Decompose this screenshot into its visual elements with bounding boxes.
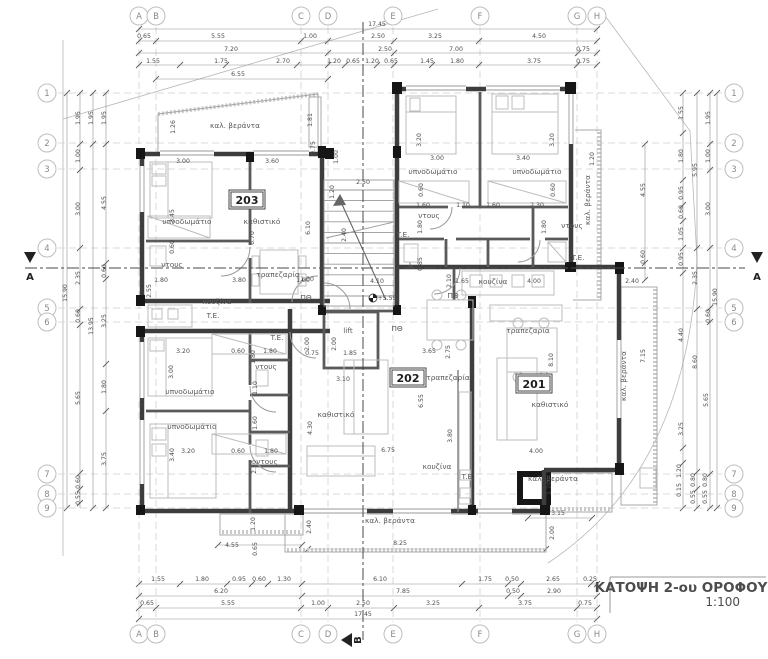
dimension-label: 0.75 (576, 46, 590, 53)
column (246, 152, 254, 162)
dimension-label: 1.55 (146, 58, 160, 65)
column (468, 505, 476, 515)
room-label: T.E. (570, 253, 584, 262)
dimension-label: 0.15 (676, 483, 683, 497)
dimension-label: 3.80 (232, 277, 246, 284)
dimension-label: 1.80 (263, 348, 277, 355)
dimension-label: 7.15 (640, 349, 647, 363)
grid-label: A (136, 12, 142, 22)
dimension-label: 3.00 (75, 202, 82, 216)
dimension-label: 2.90 (547, 588, 561, 595)
dimension-label: 3.20 (176, 348, 190, 355)
dimension-label: 5.65 (75, 391, 82, 405)
grid-label: 1 (731, 89, 736, 99)
dimension-label: 2.00 (304, 337, 311, 351)
dimension-label: 1.20 (365, 58, 379, 65)
column (392, 82, 402, 94)
dimension-label: 0.75 (310, 141, 317, 155)
stair-break-line (326, 222, 394, 238)
room-label: τραπεζαρία (506, 326, 550, 335)
dimension-label: 1.05 (678, 227, 685, 241)
dimension-label: 4.55 (101, 196, 108, 210)
dimension-label: 2.50 (378, 46, 392, 53)
dimension-label: 3.00 (705, 202, 712, 216)
dimension-label: 1.20 (676, 464, 683, 478)
dimension-label: 0.65 (140, 600, 154, 607)
wardrobe (399, 181, 469, 203)
dimension-label: 1.80 (264, 448, 278, 455)
dimension-label: 3.25 (678, 422, 685, 436)
dimension-label: 2.00 (331, 337, 338, 351)
room-label: τραπεζαρία (256, 270, 300, 279)
dimension-label: 0.60 (550, 183, 557, 197)
dimension-label: 1.00 (75, 149, 82, 163)
dimension-label: 2.35 (692, 271, 699, 285)
kitchen-counter (459, 392, 471, 504)
door-arc (221, 247, 250, 276)
dimension-label: 0.65 (384, 58, 398, 65)
sofa (307, 446, 375, 476)
dimension-label: 4.30 (307, 421, 314, 435)
dimension-label: 7.85 (396, 588, 410, 595)
dimension-label: 2.50 (371, 33, 385, 40)
dimension-label: 15.90 (62, 284, 69, 302)
grid-label: B (153, 12, 159, 22)
dimension-label: 1.60 (252, 416, 259, 430)
dimension-label: 0.75 (578, 600, 592, 607)
dimension-label: 13.95 (88, 317, 95, 335)
dimension-label: 0.95 (232, 576, 246, 583)
dimension-label: 3.25 (426, 600, 440, 607)
dimension-label: 0.75 (305, 350, 319, 357)
dimension-label: 4.10 (370, 278, 384, 285)
dimension-label: 1.00 (333, 150, 340, 164)
dimension-label: 1.80 (678, 149, 685, 163)
dimension-label: 7.20 (224, 46, 238, 53)
dimension-label: 1.00 (311, 600, 325, 607)
dimension-label: 3.00 (176, 158, 190, 165)
column (318, 146, 326, 158)
level-marker (369, 294, 377, 302)
dimension-label: 1.60 (416, 202, 430, 209)
dimension-label: 1.95 (705, 111, 712, 125)
dimension-label: 0.60 (252, 576, 266, 583)
dimension-label: 2.30 (530, 202, 544, 209)
dimension-label: 5.95 (692, 163, 699, 177)
drawing-title: ΚΑΤΟΨΗ 2-ου ΟΡΟΦΟΥ (595, 580, 768, 596)
sofa (344, 360, 388, 434)
dimension-label: 1.81 (307, 113, 314, 127)
room-label: T.E. (269, 333, 283, 342)
grid-label: 2 (44, 139, 49, 149)
dimension-label: 2.50 (356, 600, 370, 607)
dimension-label: 1.55 (678, 106, 685, 120)
grid-label: 9 (44, 504, 49, 514)
dimension-label: 0.50 (506, 588, 520, 595)
dimension-label: 7.00 (449, 46, 463, 53)
dimension-label: 1.00 (705, 149, 712, 163)
room-label: κουζίνα (479, 277, 508, 286)
dimension-label: 6.75 (381, 447, 395, 454)
dimension-label: 2.10 (446, 274, 453, 288)
grid-label: G (574, 12, 581, 22)
dimension-label: 3.25 (101, 314, 108, 328)
dimension-label: 0.60 (678, 205, 685, 219)
dimension-label: 2.35 (75, 271, 82, 285)
dimension-label: 2.50 (356, 179, 370, 186)
drawing-scale: 1:100 (705, 595, 740, 609)
dimension-label: 2.00 (549, 526, 556, 540)
column (393, 146, 401, 158)
dimension-label: 1.20 (250, 517, 257, 531)
dimension-label: 2.40 (341, 228, 348, 242)
dimension-label: 0.60 (231, 348, 245, 355)
kitchen-island (490, 305, 562, 321)
section-lines (25, 22, 745, 640)
room-label: υπνοδωμάτιο (167, 422, 217, 431)
dimension-label: 3.15 (551, 510, 565, 517)
column (540, 505, 550, 515)
grid-label: H (594, 12, 600, 22)
dimension-label: 3.40 (169, 448, 176, 462)
dimension-label: 0.60 (231, 448, 245, 455)
room-label: καλ. βεράντα (583, 175, 592, 225)
grid-label: G (574, 630, 581, 640)
window (478, 507, 512, 515)
room-label: καλ. βεράντα (619, 351, 628, 401)
grid-label: A (136, 630, 142, 640)
dimension-label: 1.20 (327, 58, 341, 65)
dimension-label: 2.40 (625, 278, 639, 285)
grid-label: 1 (44, 89, 49, 99)
window (406, 84, 466, 92)
room-label: καλ. βεράντα (210, 121, 260, 130)
room-label: ντους (418, 211, 440, 220)
dimension-label: 5.55 (211, 33, 225, 40)
dimension-label: 17.45 (354, 611, 372, 618)
grid-label: 6 (44, 318, 49, 328)
dimension-label: 0.60 (640, 250, 647, 264)
column (318, 305, 326, 315)
room-label: lift (343, 326, 353, 335)
dimension-label: 0.85 (417, 257, 424, 271)
dimension-label: 6.10 (373, 576, 387, 583)
dimension-label: 8.60 (692, 355, 699, 369)
dimension-label: 5.55 (221, 600, 235, 607)
dimension-label: 1.20 (546, 481, 553, 495)
dimension-label: 6.55 (231, 71, 245, 78)
section-marker-a-left-icon (24, 252, 36, 263)
bed (150, 162, 212, 218)
shower-fixture (150, 242, 656, 488)
grid-label: 3 (44, 165, 49, 175)
dimension-label: 1.30 (277, 576, 291, 583)
dimension-label: 1.80 (450, 58, 464, 65)
dimension-label: 1.65 (455, 278, 469, 285)
dimension-label: 3.80 (447, 429, 454, 443)
dimension-label: 0.60 (418, 183, 425, 197)
dimension-label: 1.20 (589, 152, 596, 166)
section-marker-b-icon (341, 633, 352, 647)
grid-label: E (390, 630, 395, 640)
dimension-label: 6.10 (305, 221, 312, 235)
room-label: υπνοδωμάτιο (408, 167, 458, 176)
bed (150, 424, 216, 498)
dimension-label: 0.60 (705, 309, 712, 323)
dimension-label: 0.60 (169, 240, 176, 254)
dimension-label: 0.80 (690, 473, 697, 487)
grid-label: 4 (44, 244, 49, 254)
room-label: κουζίνα (203, 297, 232, 306)
column (565, 82, 576, 94)
grid-label: 6 (731, 318, 736, 328)
dimension-label: 3.75 (527, 58, 541, 65)
section-label-b: B (353, 636, 364, 644)
dimension-label: 2.40 (306, 520, 313, 534)
veranda-bottom (285, 514, 546, 552)
dimension-label: 1.95 (75, 111, 82, 125)
dimension-label: 1.55 (151, 576, 165, 583)
dimension-label: 8.25 (393, 540, 407, 547)
dimension-label: 0.50 (505, 576, 519, 583)
dimension-label: 4.40 (678, 328, 685, 342)
dimension-label: 0.60 (75, 475, 82, 489)
unit-number: 201 (523, 378, 546, 391)
dimension-label: 1.80 (154, 277, 168, 284)
room-label: καθιστικό (532, 400, 569, 409)
unit-number: 203 (236, 194, 259, 207)
dimension-label: 4.00 (527, 278, 541, 285)
dimension-label: 3.20 (181, 448, 195, 455)
dimension-label: 2.75 (445, 345, 452, 359)
dimension-label: 4.50 (532, 33, 546, 40)
room-label: ντους (561, 221, 583, 230)
unit-number: 202 (397, 372, 420, 385)
dimension-label: 1.95 (101, 111, 108, 125)
grid-label: F (478, 12, 483, 22)
column (136, 505, 145, 515)
room-label: καλ. βεράντα (365, 516, 415, 525)
column (136, 148, 145, 159)
dimension-label: 1.85 (343, 350, 357, 357)
room-label: T.E. (460, 472, 474, 481)
room-label: ντους (256, 457, 278, 466)
dimension-label: 0.60 (75, 309, 82, 323)
bed (406, 96, 456, 154)
column (294, 505, 304, 515)
grid-label: 7 (44, 470, 49, 480)
window (138, 166, 146, 212)
grid-label: 2 (731, 139, 736, 149)
room-label: κουζίνα (423, 462, 452, 471)
column (468, 296, 476, 308)
dimension-label: 2.55 (146, 284, 153, 298)
grid-label: 4 (731, 244, 736, 254)
room-label: υπνοδωμάτιο (162, 217, 212, 226)
section-marker-a-right-icon (751, 252, 763, 263)
dimension-label: 0.60 (101, 264, 108, 278)
column (136, 295, 145, 306)
room-label: υπνοδωμάτιο (512, 167, 562, 176)
verandas (158, 94, 657, 552)
room-label: καλ. βεράντα (528, 474, 578, 483)
dimension-label: 4.55 (640, 183, 647, 197)
grid-label: C (298, 630, 304, 640)
dimension-label: 0.55 (690, 490, 697, 504)
grid-label: 9 (731, 504, 736, 514)
window (138, 342, 146, 398)
dimension-label: 1.75 (478, 576, 492, 583)
dimension-label: 1.20 (329, 185, 336, 199)
dimension-label: +5.55 (378, 295, 397, 302)
room-label: T.E. (205, 311, 219, 320)
dimension-label: 0.95 (678, 186, 685, 200)
grid-label: H (594, 630, 600, 640)
dimension-label: 0.55 (75, 491, 82, 505)
dimension-label: 1.00 (303, 33, 317, 40)
window (253, 149, 309, 157)
dimension-label: 3.20 (549, 133, 556, 147)
dimension-label: 0.75 (576, 58, 590, 65)
room-label: υπνοδωμάτιο (165, 387, 215, 396)
dimension-label: 1.10 (252, 381, 259, 395)
grid-label: F (478, 630, 483, 640)
dimension-label: 15.90 (712, 288, 719, 306)
dimension-label: 0.95 (678, 252, 685, 266)
dimension-label: 4.00 (529, 448, 543, 455)
dimension-label: 8.10 (548, 353, 555, 367)
sofa (497, 358, 537, 440)
boundary-line (600, 9, 697, 260)
dimension-label: 1.10 (456, 202, 470, 209)
column (393, 305, 401, 315)
column (136, 326, 145, 337)
dimension-label: 1.60 (486, 202, 500, 209)
room-label: ΠΘ (447, 291, 459, 300)
dimension-label: 4.55 (225, 542, 239, 549)
floor-plan-page: AABBCCDDEEFFGGHH112233445566778899 (0, 0, 768, 659)
dimension-label: 6.20 (214, 588, 228, 595)
dimension-label: 3.20 (416, 133, 423, 147)
dimension-label: 0.65 (252, 542, 259, 556)
door-arc (518, 240, 540, 262)
room-label: ΠΘ (391, 324, 403, 333)
dimension-label: 17.45 (368, 21, 386, 28)
grid-label: D (325, 630, 332, 640)
dimension-label: 3.75 (518, 600, 532, 607)
section-label-a-right: A (753, 272, 761, 283)
grid-label: 3 (731, 165, 736, 175)
title-block: ΚΑΤΟΨΗ 2-ου ΟΡΟΦΟΥ 1:100 (595, 577, 768, 613)
dimension-label: 5.65 (703, 393, 710, 407)
dimension-label: 6.55 (418, 394, 425, 408)
room-label: τραπεζαρία (426, 373, 470, 382)
dimension-label: 1.45 (420, 58, 434, 65)
dimension-label: 3.25 (428, 33, 442, 40)
window (486, 84, 560, 92)
dimension-label: 0.55 (702, 490, 709, 504)
dimension-label: 1.26 (170, 120, 177, 134)
column (615, 463, 624, 475)
dimension-label: 1.80 (195, 576, 209, 583)
dimension-label: 3.00 (168, 365, 175, 379)
room-label: καθιστικό (244, 217, 281, 226)
grid-label: B (153, 630, 159, 640)
floor-plan-drawing: AABBCCDDEEFFGGHH112233445566778899 (0, 0, 768, 659)
room-label: ντους (255, 362, 277, 371)
dimension-label: 1.95 (88, 111, 95, 125)
dimension-label: 1.80 (541, 220, 548, 234)
wall (446, 207, 533, 267)
room-label: ΠΘ (300, 293, 312, 302)
column (565, 262, 576, 272)
dimension-label: 1.80 (101, 380, 108, 394)
grid-label: E (390, 12, 395, 22)
dimension-label: 6.70 (249, 231, 256, 245)
window (160, 149, 214, 157)
grid-label: C (298, 12, 304, 22)
window (303, 507, 367, 515)
window (567, 94, 575, 144)
window (138, 420, 146, 484)
dimension-label: 0.65 (137, 33, 151, 40)
dimension-label: 3.75 (101, 452, 108, 466)
grid-label: 7 (731, 470, 736, 480)
dimension-label: 3.65 (422, 348, 436, 355)
dimension-label: 3.40 (516, 155, 530, 162)
room-label: ♿ (408, 261, 415, 270)
dimension-label: 3.60 (265, 158, 279, 165)
dimension-label: 3.10 (336, 376, 350, 383)
grid-label: D (325, 12, 332, 22)
room-label: T.E. (395, 230, 409, 239)
dimension-label: 1.80 (417, 220, 424, 234)
room-label: ντους (161, 260, 183, 269)
window (393, 507, 451, 515)
dimension-label: 1.75 (214, 58, 228, 65)
dimension-label: 0.65 (346, 58, 360, 65)
section-label-a-left: A (26, 272, 34, 283)
dimension-label: 1.00 (300, 276, 314, 283)
dimension-label: 3.00 (430, 155, 444, 162)
dimension-label: 2.65 (546, 576, 560, 583)
dimension-label: 0.80 (702, 473, 709, 487)
room-label: καθιστικό (318, 410, 355, 419)
dimension-label: 2.70 (276, 58, 290, 65)
